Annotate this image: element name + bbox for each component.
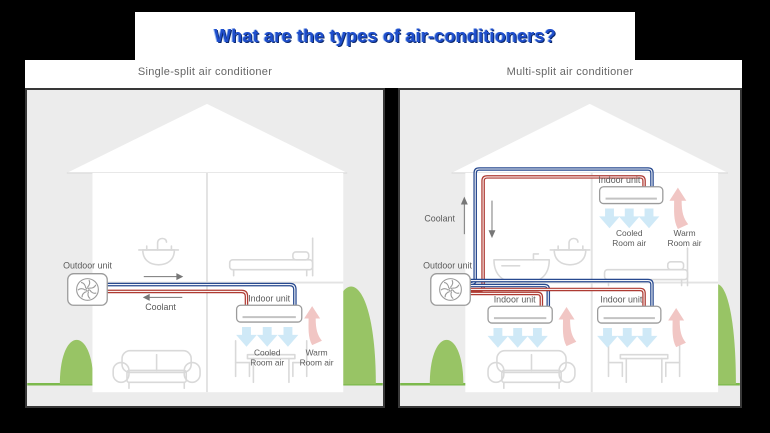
indoor-unit-label: Indoor unit — [248, 293, 290, 303]
indoor-unit — [237, 305, 302, 322]
panel-subtitle-single-split: Single-split air conditioner — [25, 66, 385, 78]
house-roof — [67, 104, 347, 173]
warm-air-label: Warm — [674, 228, 696, 238]
page-title: What are the types of air-conditioners? — [214, 26, 556, 47]
title-strip: What are the types of air-conditioners? — [135, 12, 635, 60]
cooled-air-label: Cooled — [254, 348, 281, 358]
infographic-canvas: What are the types of air-conditioners? … — [0, 0, 770, 433]
coolant-label: Coolant — [424, 213, 455, 223]
panel-multi-split: Coolant Outdoor unit Indoor unit Cooled … — [398, 88, 742, 408]
svg-text:Room air: Room air — [612, 238, 646, 248]
coolant-label: Coolant — [145, 302, 176, 312]
indoor-unit-label: Indoor unit — [600, 294, 642, 304]
outdoor-unit-label: Outdoor unit — [423, 261, 472, 271]
svg-text:Room air: Room air — [250, 358, 284, 368]
cooled-air-label: Cooled — [616, 228, 643, 238]
multi-split-diagram: Coolant Outdoor unit Indoor unit Cooled … — [400, 90, 740, 406]
panel-subtitle-multi-split: Multi-split air conditioner — [398, 66, 742, 78]
indoor-unit-bedroom — [600, 187, 663, 204]
outdoor-unit — [431, 274, 471, 306]
outdoor-unit-label: Outdoor unit — [63, 261, 112, 271]
outdoor-unit — [68, 274, 108, 306]
svg-text:Room air: Room air — [668, 238, 702, 248]
indoor-unit-label: Indoor unit — [494, 294, 536, 304]
panel-single-split: Coolant Outdoor unit Indoor unit Cooled … — [25, 88, 385, 408]
bush — [430, 340, 464, 384]
bush — [60, 340, 94, 384]
single-split-diagram: Coolant Outdoor unit Indoor unit Cooled … — [27, 90, 383, 406]
svg-text:Room air: Room air — [300, 358, 334, 368]
indoor-unit-dining-room — [598, 306, 661, 323]
house-roof — [452, 104, 729, 173]
warm-air-label: Warm — [306, 348, 328, 358]
indoor-unit-label: Indoor unit — [598, 175, 640, 185]
indoor-unit-living-room — [488, 306, 552, 323]
